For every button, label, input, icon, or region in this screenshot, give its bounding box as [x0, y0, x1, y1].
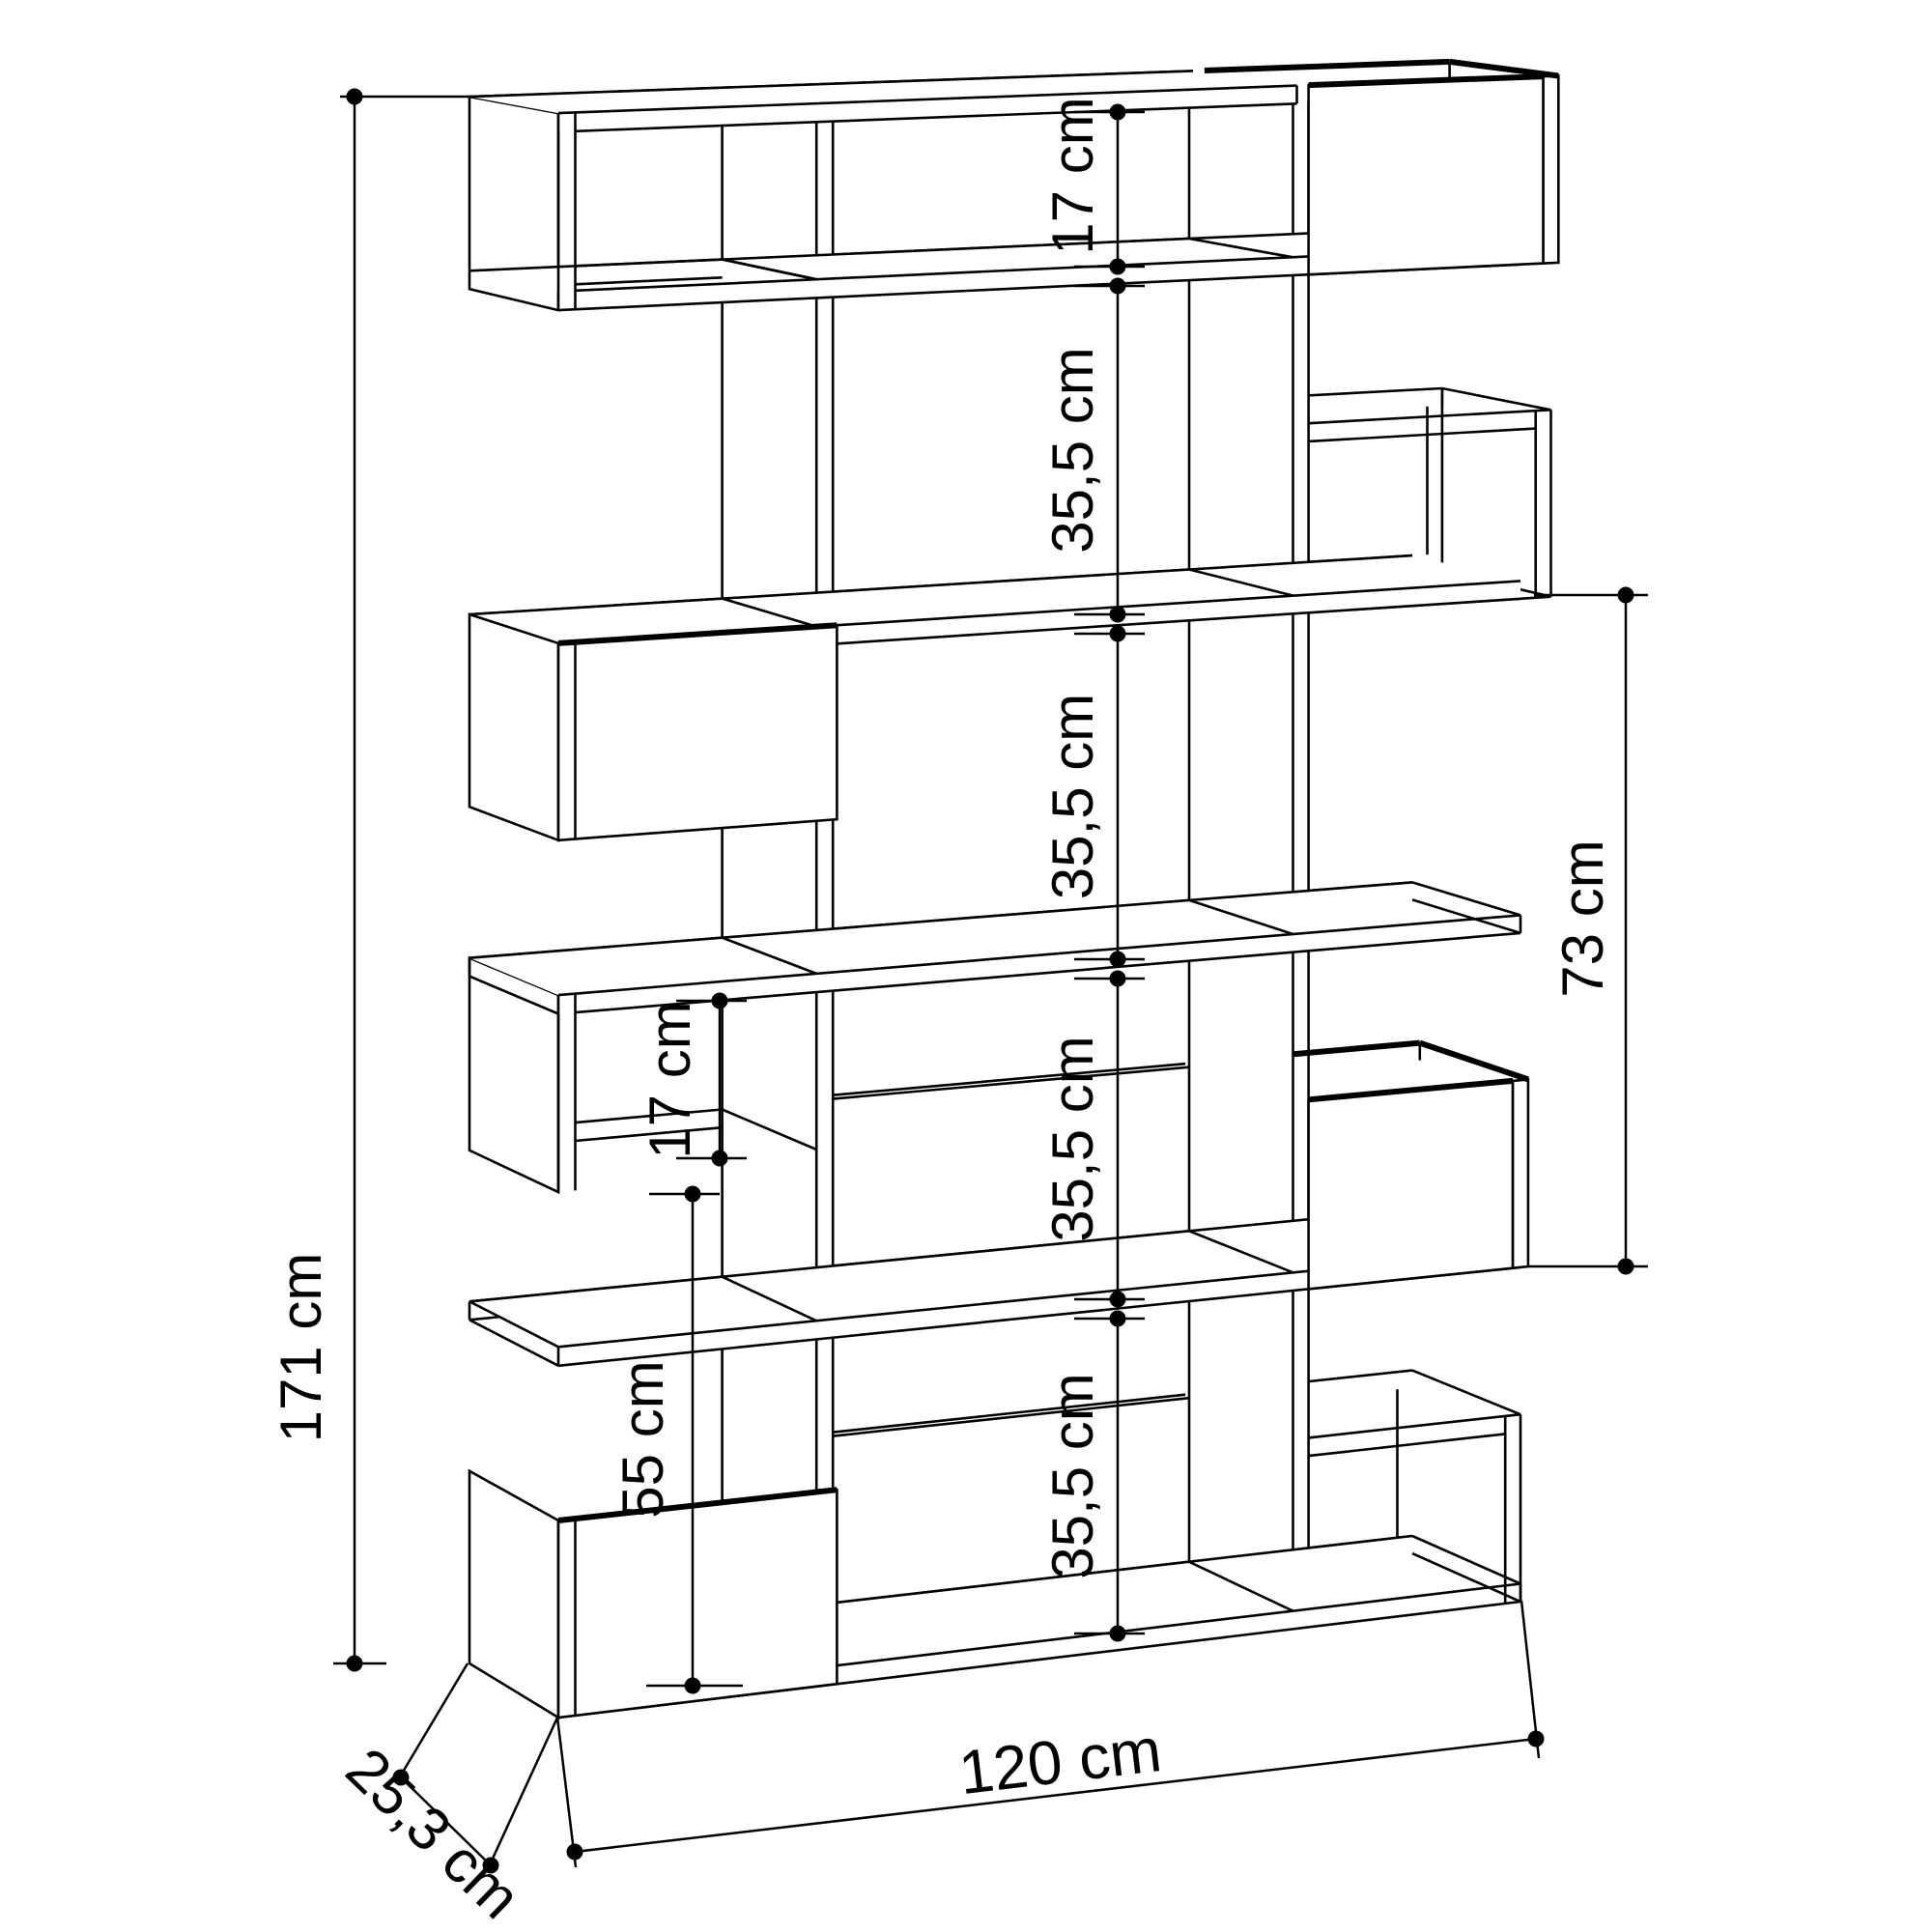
svg-text:17 cm: 17 cm: [638, 1001, 702, 1158]
svg-text:35,5 cm: 35,5 cm: [1040, 694, 1105, 899]
svg-text:35,5 cm: 35,5 cm: [1040, 347, 1105, 553]
svg-text:73 cm: 73 cm: [1550, 839, 1615, 997]
svg-text:17 cm: 17 cm: [1040, 97, 1105, 254]
svg-text:171 cm: 171 cm: [269, 1253, 333, 1443]
svg-text:35,5 cm: 35,5 cm: [1040, 1036, 1105, 1241]
svg-text:35,5 cm: 35,5 cm: [1040, 1373, 1105, 1578]
svg-text:55 cm: 55 cm: [611, 1360, 675, 1518]
